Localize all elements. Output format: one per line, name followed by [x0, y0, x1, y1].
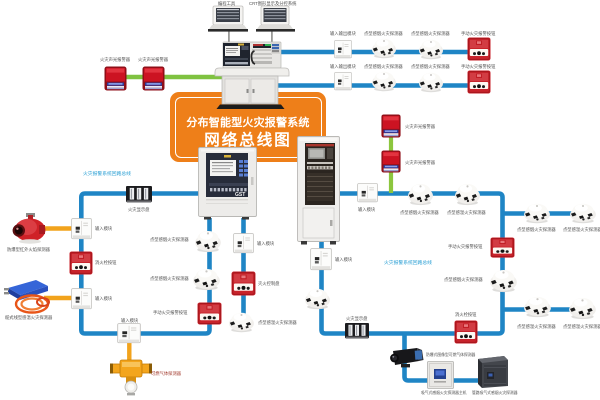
svg-text:GST: GST	[235, 192, 245, 198]
